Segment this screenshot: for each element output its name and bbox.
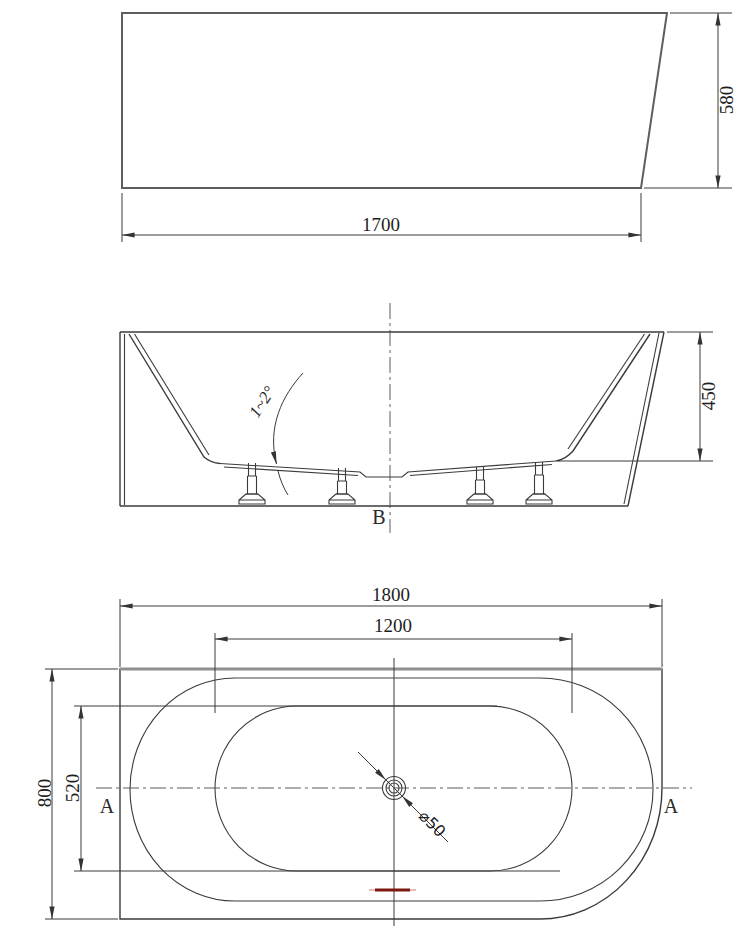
plan-basin-length-dim-label: 1200 [374, 616, 412, 635]
section-depth-dim-label: 450 [699, 382, 718, 411]
drawing-linework [0, 0, 743, 928]
plan-basin-width-dim-label: 520 [63, 774, 82, 803]
bathtub-technical-drawing: 1700 580 1~2° 450 B 1800 1200 800 520 A … [0, 0, 743, 928]
side-height-dim-label: 580 [717, 86, 736, 115]
side-width-dim-label: 1700 [362, 215, 400, 234]
plan-length-dim-label: 1800 [372, 585, 410, 604]
plan-width-dim-label: 800 [35, 779, 54, 808]
rim-inner-edge [130, 678, 653, 901]
slope-leader [274, 373, 303, 464]
plan-view [45, 599, 692, 926]
side-view-outline [122, 13, 667, 188]
plan-section-marker-left: A [100, 796, 114, 816]
section-view [120, 303, 713, 533]
basin-bottom-profile [220, 461, 556, 477]
section-marker-label: B [372, 507, 385, 527]
basin-edge [215, 706, 572, 871]
plan-section-marker-right: A [664, 796, 678, 816]
side-view [122, 13, 732, 242]
